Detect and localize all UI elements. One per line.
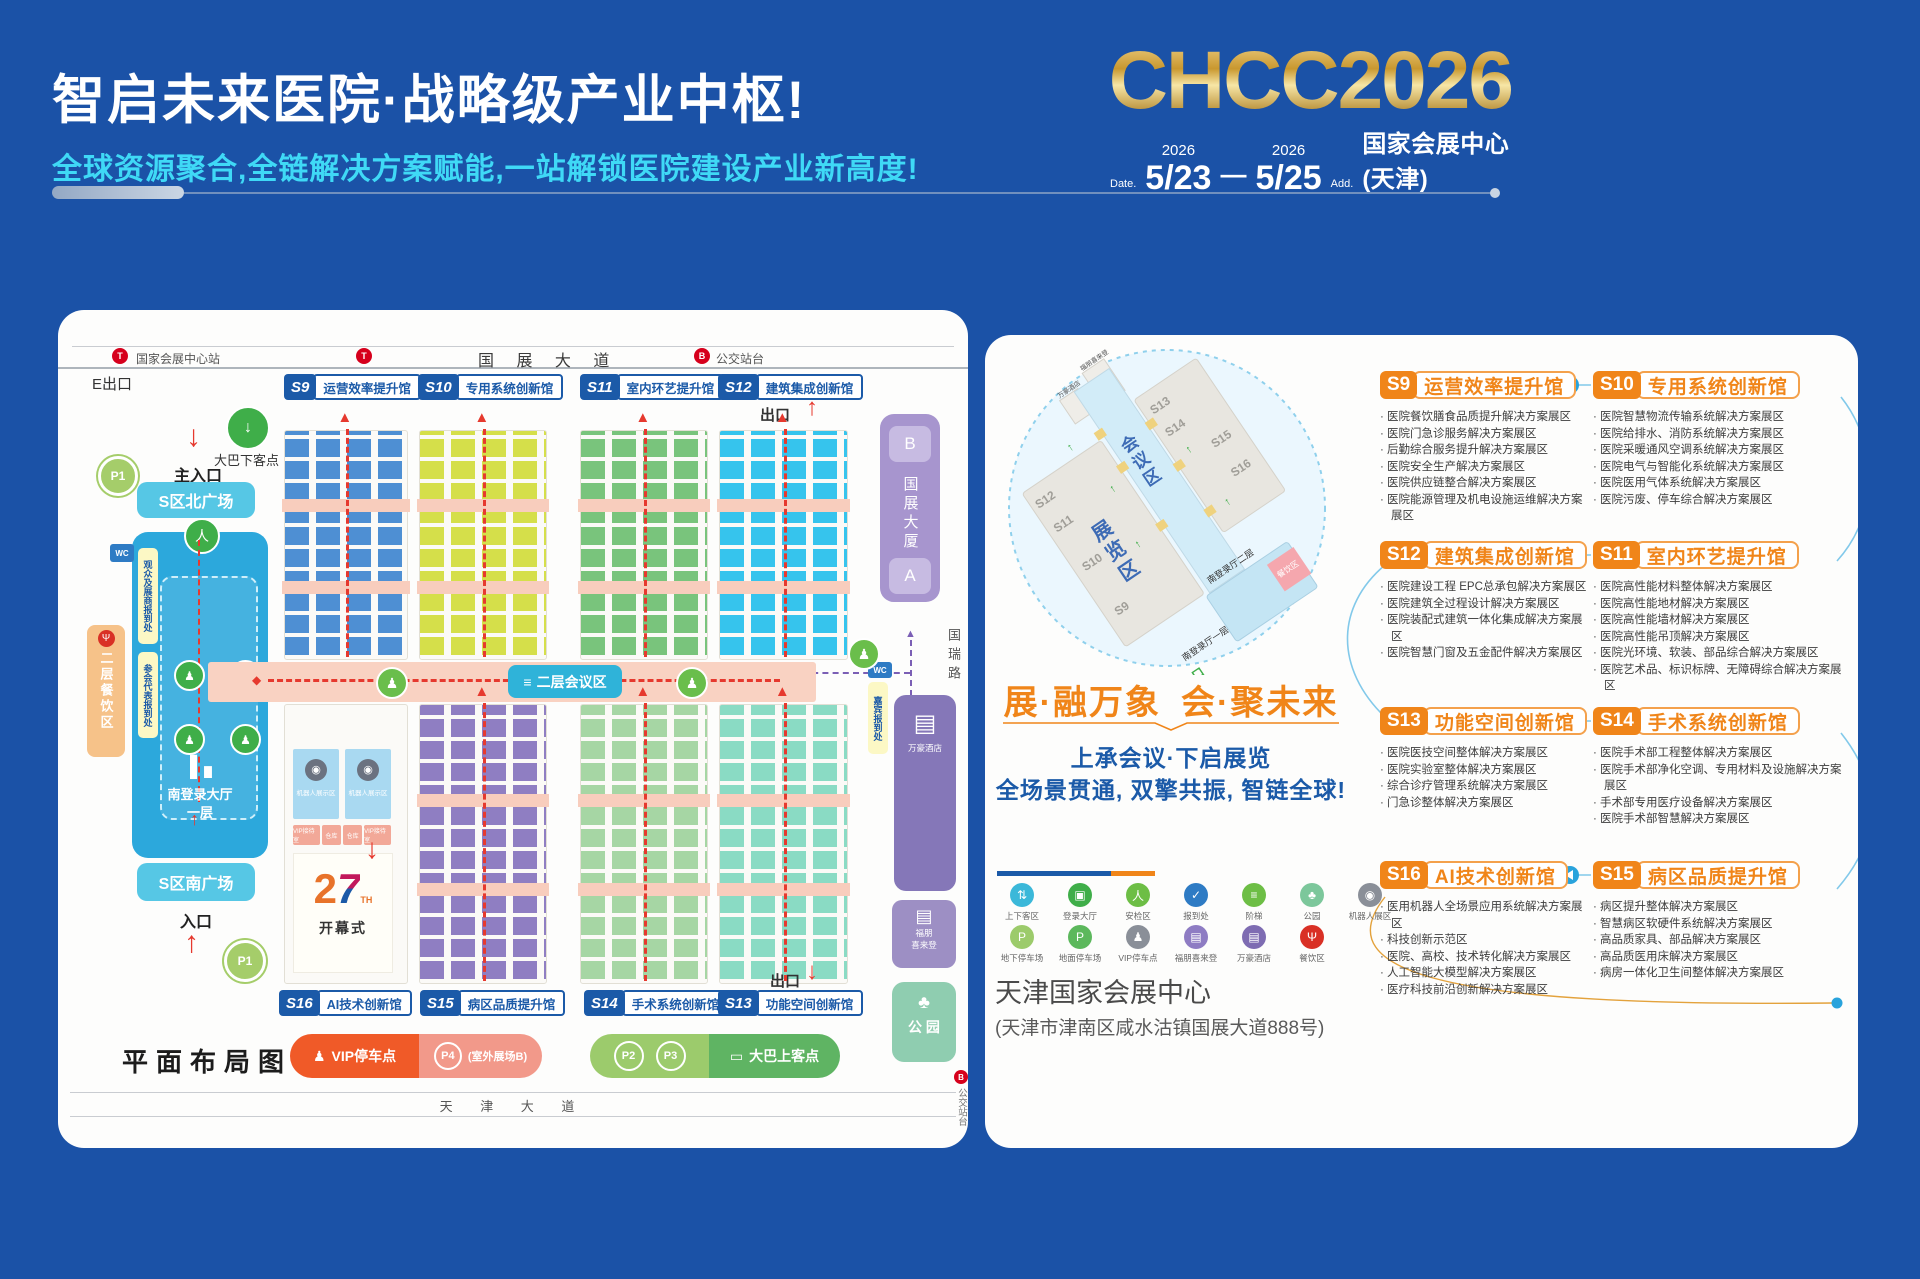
conference-zone-label: 二层会议区	[537, 672, 607, 692]
logo-th: TH	[360, 895, 372, 905]
hall-code: S15	[420, 990, 461, 1016]
section-items: 医院医技空间整体解决方案展区医院实验室整体解决方案展区综合诊疗管理系统解决方案展…	[1380, 745, 1592, 811]
legend-label: 地下停车场	[993, 952, 1051, 964]
section-item: 医院能源管理及机电设施运维解决方案展区	[1380, 492, 1592, 525]
park-block: ♣ 公 园	[892, 982, 956, 1062]
section-name: 功能空间创新馆	[1423, 707, 1587, 735]
legend-label: 登录大厅	[1051, 910, 1109, 922]
section-item: 医院医技空间整体解决方案展区	[1380, 745, 1592, 762]
section-item: 医院手术部净化空调、专用材料及设施解决方案展区	[1593, 762, 1848, 795]
section-header: S14 手术系统创新馆	[1593, 707, 1800, 735]
slogan-left: 展·融万象	[1004, 675, 1161, 724]
route-arrow-icon: ▲	[635, 683, 650, 700]
section-item: 医院高性能吊顶解决方案展区	[1593, 629, 1848, 646]
hall-s15-area: ▲	[419, 704, 547, 984]
section-s10: S10 专用系统创新馆 医院智慧物流传输系统解决方案展区医院给排水、消防系统解决…	[1593, 371, 1848, 508]
section-name: 建筑集成创新馆	[1423, 541, 1587, 569]
hotel-icon: ▤	[892, 906, 956, 927]
robot-icon: ◉	[305, 759, 327, 781]
route-arrow-icon: ▲	[775, 409, 790, 426]
hall-badge-s13: S13 功能空间创新馆	[718, 990, 863, 1016]
logo-7: 7	[337, 865, 360, 912]
date-label: Date.	[1110, 178, 1136, 190]
hall-s13-area: ▲	[719, 704, 848, 984]
fourpoints-label-1: 福朋	[892, 927, 956, 939]
section-item: 医院手术部智慧解决方案展区	[1593, 811, 1848, 828]
section-header: S9 运营效率提升馆	[1380, 371, 1576, 399]
hall-s9-area: ▲	[284, 430, 408, 660]
hall-s14-area: ▲	[580, 704, 708, 984]
legend-item: ♣ 公园	[1283, 883, 1341, 922]
section-s13: S13 功能空间创新馆 医院医技空间整体解决方案展区医院实验室整体解决方案展区综…	[1380, 707, 1592, 811]
marriott-hotel-label: 万豪酒店	[894, 742, 956, 754]
section-items: 医院餐饮膳食品质提升解决方案展区医院门急诊服务解决方案展区后勤综合服务提升解决方…	[1380, 409, 1592, 525]
robot-icon: ◉	[357, 759, 379, 781]
info-card: 万豪酒店 福朋喜来登 展览区 会议区 S12 S11 S10 S9 S13 S1…	[985, 335, 1858, 1148]
opening-ceremony-block: 27TH 开幕式	[293, 853, 393, 973]
legend-icon: ⇅	[1010, 883, 1034, 907]
exit-top-arrow-icon: ↑	[806, 394, 818, 422]
section-item: 高品质医用床解决方案展区	[1593, 949, 1848, 966]
legend-item: ▣ 登录大厅	[1051, 883, 1109, 922]
section-s9: S9 运营效率提升馆 医院餐饮膳食品质提升解决方案展区医院门急诊服务解决方案展区…	[1380, 371, 1592, 525]
robot-zone-label: 机器人展示区	[293, 787, 339, 797]
legend-label: 安检区	[1109, 910, 1167, 922]
road-name-south: 天 津 大 道	[58, 1096, 968, 1115]
legend-item: ⇅ 上下客区	[993, 883, 1051, 922]
hall-s16-area: ◉ 机器人展示区 ◉ 机器人展示区 VIP接待室 仓库 仓库 VIP接待室 ↓ …	[284, 704, 408, 984]
road-line	[70, 1092, 956, 1093]
route-arrow-icon: ▲	[474, 409, 489, 426]
logo-2: 2	[314, 865, 337, 912]
section-item: 医疗科技前沿创新解决方案展区	[1380, 982, 1592, 999]
section-item: 医院光环境、软装、部品综合解决方案展区	[1593, 645, 1848, 662]
south-login-hall-label: 南登录大厅	[132, 784, 268, 803]
section-item: 综合诊疗管理系统解决方案展区	[1380, 778, 1592, 795]
section-item: 医院采暖通风空调系统解决方案展区	[1593, 442, 1848, 459]
section-code: S12	[1380, 541, 1428, 569]
hall-code: S12	[718, 374, 759, 400]
p2-icon: P2	[614, 1041, 644, 1071]
exit-bottom-arrow-icon: ↓	[806, 958, 818, 986]
road-name-north: 国 展 大 道	[478, 347, 618, 371]
section-item: 医院建设工程 EPC总承包解决方案展区	[1380, 579, 1592, 596]
legend-bar	[997, 871, 1155, 876]
route-arrow-icon: ▲	[474, 683, 489, 700]
section-items: 医用机器人全场景应用系统解决方案展区科技创新示范区医院、高校、技术转化解决方案展…	[1380, 899, 1592, 998]
hall-badge-s11: S11 室内环艺提升馆	[580, 374, 724, 400]
section-items: 医院建设工程 EPC总承包解决方案展区医院建筑全过程设计解决方案展区医院装配式建…	[1380, 579, 1592, 662]
conference-zone-badge: ≡二层会议区	[508, 665, 622, 698]
walker-icon: ♟	[174, 724, 205, 755]
route-up-arrow-icon: ↑	[190, 809, 199, 830]
legend-icon: P	[1010, 925, 1034, 949]
bus-stop-icon: B	[694, 348, 710, 364]
central-corridor: ◆ ♟ ♟ ≡二层会议区	[208, 662, 816, 702]
robot-zone-block: ◉ 机器人展示区	[345, 749, 391, 819]
section-item: 医院供应链整合解决方案展区	[1380, 475, 1592, 492]
section-header: S16 AI技术创新馆	[1380, 861, 1568, 889]
exit-e-label: E出口	[92, 373, 132, 394]
vip-parking-pill: ♟ VIP停车点 P4 (室外展场B)	[290, 1034, 542, 1078]
guorui-road-label: 国瑞路	[944, 628, 963, 685]
guest-registration-label: 嘉宾报到处	[868, 682, 888, 754]
section-item: 医院高性能材料整体解决方案展区	[1593, 579, 1848, 596]
corridor-route-diamond-icon: ◆	[252, 673, 261, 687]
section-item: 医院安全生产解决方案展区	[1380, 459, 1592, 476]
legend-label: 上下客区	[993, 910, 1051, 922]
section-item: 病区提升整体解决方案展区	[1593, 899, 1848, 916]
section-name: 室内环艺提升馆	[1635, 541, 1799, 569]
floorplan-card: T 国家会展中心站 T B 公交站台 国 展 大 道 E出口 F出口 S9 运营…	[58, 310, 968, 1148]
p4-note: (室外展场B)	[468, 1048, 527, 1064]
bus-stop-icon: B	[954, 1070, 968, 1084]
hall-name: AI技术创新馆	[317, 990, 412, 1016]
legend-item: P 地面停车场	[1051, 925, 1109, 964]
sub-slogan-1: 上承会议·下启展览	[985, 739, 1357, 773]
section-name: 运营效率提升馆	[1412, 371, 1576, 399]
legend-label: 福朋喜来登	[1167, 952, 1225, 964]
guest-route-line	[802, 672, 910, 674]
venue-name: 天津国家会展中心	[995, 971, 1211, 1010]
section-item: 人工智能大模型解决方案展区	[1380, 965, 1592, 982]
dining-icon: Ψ	[98, 630, 115, 647]
legend-item: ≡ 阶梯	[1225, 883, 1283, 922]
section-item: 医院装配式建筑一体化集成解决方案展区	[1380, 612, 1592, 645]
legend-bar-orange	[1111, 871, 1155, 876]
section-item: 医院智慧门窗及五金配件解决方案展区	[1380, 645, 1592, 662]
section-item: 后勤综合服务提升解决方案展区	[1380, 442, 1592, 459]
wc-icon: WC	[110, 544, 134, 562]
legend-item: ♟ VIP停车点	[1109, 925, 1167, 964]
section-item: 病房一体化卫生间整体解决方案展区	[1593, 965, 1848, 982]
section-item: 医院高性能地材解决方案展区	[1593, 596, 1848, 613]
p3-icon: P3	[656, 1041, 686, 1071]
hall-code: S14	[584, 990, 625, 1016]
hall-name: 病区品质提升馆	[458, 990, 566, 1016]
page-subtitle: 全球资源聚合,全链解决方案赋能,一站解锁医院建设产业新高度!	[52, 144, 919, 188]
delegate-registration-label: 参会代表报到处	[138, 652, 158, 738]
route-dashed-line	[644, 703, 647, 981]
section-items: 医院高性能材料整体解决方案展区医院高性能地材解决方案展区医院高性能墙材解决方案展…	[1593, 579, 1848, 695]
route-down-arrow-icon: ↓	[365, 833, 379, 865]
entrance-arrow-icon: ↑	[184, 926, 199, 960]
walker-icon: ♟	[376, 667, 408, 699]
opening-ceremony-label: 开幕式	[294, 918, 392, 938]
robot-zone-label: 机器人展示区	[345, 787, 391, 797]
venue-overview-map: 万豪酒店 福朋喜来登 展览区 会议区 S12 S11 S10 S9 S13 S1…	[1000, 345, 1335, 675]
visitor-registration-label: 观众及展商报到处	[138, 548, 158, 644]
section-name: AI技术创新馆	[1423, 861, 1568, 889]
guest-route-arrow-icon: ▲	[905, 628, 916, 640]
hall-name: 室内环艺提升馆	[617, 374, 725, 400]
road-line	[70, 1116, 956, 1117]
metro-station-label: 国家会展中心站	[136, 350, 220, 367]
sub-slogan-2: 全场景贯通, 双擎共振, 智链全球!	[985, 771, 1357, 805]
legend-item: ▤ 万豪酒店	[1225, 925, 1283, 964]
hall-s12-area: ▲	[719, 430, 848, 660]
section-header: S12 建筑集成创新馆	[1380, 541, 1587, 569]
p4-icon: P4	[434, 1042, 462, 1070]
section-item: 智慧病区软硬件系统解决方案展区	[1593, 916, 1848, 933]
slogan-row: 展·融万象 会·聚未来	[985, 675, 1357, 724]
legend-icon: ▤	[1242, 925, 1266, 949]
main-entrance-arrow-icon: ↓	[186, 420, 201, 454]
legend-icon: ◉	[1358, 883, 1382, 907]
section-item: 医院高性能墙材解决方案展区	[1593, 612, 1848, 629]
event-dates: Date. 20265/23 — 20265/25 Add. 国家会展中心(天津…	[1110, 124, 1515, 195]
legend-item: Ψ 餐饮区	[1283, 925, 1341, 964]
bus-icon: ▭	[730, 1048, 743, 1065]
legend-icon: P	[1068, 925, 1092, 949]
tree-icon: ♣	[892, 992, 956, 1013]
route-arrow-icon: ▲	[775, 683, 790, 700]
walker-icon: ♟	[848, 638, 880, 670]
legend-row-1: ⇅ 上下客区 ▣ 登录大厅 人 安检区 ✓ 报到处 ≡ 阶梯 ♣ 公园 ◉ 机器…	[993, 883, 1399, 922]
hall-badge-s10: S10 专用系统创新馆	[418, 374, 563, 400]
legend-icon: ♣	[1300, 883, 1324, 907]
hall-s11-area: ▲	[580, 430, 708, 660]
poster-page: 智启未来医院·战略级产业中枢! 全球资源聚合,全链解决方案赋能,一站解锁医院建设…	[0, 0, 1920, 1279]
legend-icon: 人	[1126, 883, 1150, 907]
hall-badge-s15: S15 病区品质提升馆	[420, 990, 565, 1016]
section-s15: S15 病区品质提升馆 病区提升整体解决方案展区智慧病区软硬件系统解决方案展区高…	[1593, 861, 1848, 982]
section-item: 医用机器人全场景应用系统解决方案展区	[1380, 899, 1592, 932]
legend-item: P 地下停车场	[993, 925, 1051, 964]
legend-label: 公园	[1283, 910, 1341, 922]
legend-icon: ♟	[1126, 925, 1150, 949]
section-code: S13	[1380, 707, 1428, 735]
plan-title: 平面布局图	[122, 1042, 292, 1079]
metro-icon: T	[356, 348, 372, 364]
section-item: 医院智慧物流传输系统解决方案展区	[1593, 409, 1848, 426]
tower-a-label: A	[889, 558, 931, 594]
hall-name: 专用系统创新馆	[456, 374, 564, 400]
27th-logo: 27TH	[294, 868, 392, 910]
walker-icon: ♟	[230, 724, 261, 755]
hall-name: 运营效率提升馆	[313, 374, 421, 400]
hall-code: S9	[284, 374, 316, 400]
section-items: 医院手术部工程整体解决方案展区医院手术部净化空调、专用材料及设施解决方案展区手术…	[1593, 745, 1848, 828]
vip-room-label: VIP接待室	[293, 825, 320, 845]
section-item: 医院污废、停车综合解决方案展区	[1593, 492, 1848, 509]
section-s12: S12 建筑集成创新馆 医院建设工程 EPC总承包解决方案展区医院建筑全过程设计…	[1380, 541, 1592, 662]
south-login-hall-floor: 一层	[132, 802, 268, 821]
page-title: 智启未来医院·战略级产业中枢!	[52, 58, 806, 134]
bus-pickup-pill: P2 P3 ▭ 大巴上客点	[590, 1034, 840, 1078]
section-item: 医院建筑全过程设计解决方案展区	[1380, 596, 1592, 613]
legend-icon: ▤	[1184, 925, 1208, 949]
venue-name-header: 国家会展中心(天津)	[1362, 124, 1515, 194]
divider-line	[184, 192, 1492, 194]
legend-label: 餐饮区	[1283, 952, 1341, 964]
section-header: S10 专用系统创新馆	[1593, 371, 1800, 399]
p1-parking-icon: P1	[98, 456, 138, 496]
bus-dropoff-icon: ↓	[226, 406, 270, 450]
slogan-right: 会·聚未来	[1181, 675, 1338, 724]
section-item: 医院给排水、消防系统解决方案展区	[1593, 426, 1848, 443]
legend-icon: Ψ	[1300, 925, 1324, 949]
storage-label: 仓库	[343, 825, 362, 845]
building-icon: ▌▖	[190, 754, 220, 779]
legend-icon: ✓	[1184, 883, 1208, 907]
route-arrow-icon: ▲	[337, 409, 352, 426]
section-item: 科技创新示范区	[1380, 932, 1592, 949]
legend-item: 人 安检区	[1109, 883, 1167, 922]
metro-icon: T	[112, 348, 128, 364]
divider-bar	[52, 186, 184, 199]
fourpoints-label-2: 喜来登	[892, 939, 956, 951]
slogan-underline	[1003, 719, 1339, 731]
park-label: 公 园	[892, 1017, 956, 1037]
hall-badge-s14: S14 手术系统创新馆	[584, 990, 729, 1016]
section-item: 医院手术部工程整体解决方案展区	[1593, 745, 1848, 762]
expo-tower-label: 国展大厦	[880, 472, 940, 556]
south-plaza-label: S区南广场	[137, 863, 255, 901]
section-code: S9	[1380, 371, 1417, 399]
divider-dot	[1490, 188, 1500, 198]
marriott-hotel-block: ▤ 万豪酒店	[894, 695, 956, 891]
section-item: 高品质家具、部品解决方案展区	[1593, 932, 1848, 949]
section-s16: S16 AI技术创新馆 医用机器人全场景应用系统解决方案展区科技创新示范区医院、…	[1380, 861, 1592, 998]
route-dashed-line	[784, 703, 787, 981]
legend-label: 阶梯	[1225, 910, 1283, 922]
expo-tower-block: B 国展大厦 A	[880, 414, 940, 602]
bus-dropoff-label: 大巴下客点	[214, 450, 279, 469]
hall-s10-area: ▲	[419, 430, 547, 660]
hotel-icon: ▤	[894, 709, 956, 738]
legend-item: ✓ 报到处	[1167, 883, 1225, 922]
section-item: 医院医用气体系统解决方案展区	[1593, 475, 1848, 492]
section-item: 医院电气与智能化系统解决方案展区	[1593, 459, 1848, 476]
legend-label: 万豪酒店	[1225, 952, 1283, 964]
section-name: 手术系统创新馆	[1636, 707, 1800, 735]
hall-code: S11	[580, 374, 620, 400]
north-plaza-label: S区北广场	[137, 482, 255, 518]
section-s14: S14 手术系统创新馆 医院手术部工程整体解决方案展区医院手术部净化空调、专用材…	[1593, 707, 1848, 828]
section-item: 医院艺术品、标识标牌、无障碍综合解决方案展区	[1593, 662, 1848, 695]
section-item: 医院实验室整体解决方案展区	[1380, 762, 1592, 779]
hall-badge-s12: S12 建筑集成创新馆	[718, 374, 863, 400]
walker-icon: ♟	[676, 667, 708, 699]
section-name: 专用系统创新馆	[1636, 371, 1800, 399]
section-header: S13 功能空间创新馆	[1380, 707, 1587, 735]
section-header: S11 室内环艺提升馆	[1593, 541, 1799, 569]
section-item: 医院、高校、技术转化解决方案展区	[1380, 949, 1592, 966]
section-header: S15 病区品质提升馆	[1593, 861, 1800, 889]
section-item: 手术部专用医疗设备解决方案展区	[1593, 795, 1848, 812]
p1-parking-icon: P1	[224, 940, 266, 982]
hall-badge-s9: S9 运营效率提升馆	[284, 374, 421, 400]
section-code: S10	[1593, 371, 1641, 399]
venue-address: (天津市津南区咸水沽镇国展大道888号)	[995, 1013, 1324, 1040]
vip-parking-label: VIP停车点	[332, 1046, 397, 1066]
route-dashed-line	[644, 429, 647, 657]
hall-name: 手术系统创新馆	[622, 990, 730, 1016]
date-end: 20265/25	[1255, 143, 1321, 195]
section-items: 医院智慧物流传输系统解决方案展区医院给排水、消防系统解决方案展区医院采暖通风空调…	[1593, 409, 1848, 508]
vip-person-icon: ♟	[313, 1048, 326, 1065]
hall-code: S10	[418, 374, 459, 400]
section-name: 病区品质提升馆	[1636, 861, 1800, 889]
chcc-logo: CHCC2026	[1100, 40, 1512, 122]
route-dashed-line	[346, 429, 349, 657]
fourpoints-hotel-block: ▤ 福朋 喜来登	[892, 900, 956, 968]
section-item: 门急诊整体解决方案展区	[1380, 795, 1592, 812]
section-code: S14	[1593, 707, 1641, 735]
people-icon: ≡	[523, 674, 531, 690]
route-arrow-icon: ▲	[635, 409, 650, 426]
date-start: 20265/23	[1145, 143, 1211, 195]
section-code: S16	[1380, 861, 1428, 889]
section-item: 医院门急诊服务解决方案展区	[1380, 426, 1592, 443]
section-s11: S11 室内环艺提升馆 医院高性能材料整体解决方案展区医院高性能地材解决方案展区…	[1593, 541, 1848, 695]
dining-area-block: Ψ 二层餐饮区	[87, 625, 125, 757]
storage-label: 仓库	[322, 825, 341, 845]
walker-icon: ♟	[174, 660, 205, 691]
robot-zone-block: ◉ 机器人展示区	[293, 749, 339, 819]
date-dash: —	[1220, 159, 1246, 190]
tower-b-label: B	[889, 426, 931, 462]
section-code: S11	[1593, 541, 1640, 569]
section-items: 病区提升整体解决方案展区智慧病区软硬件系统解决方案展区高品质家具、部品解决方案展…	[1593, 899, 1848, 982]
legend-row-2: P 地下停车场 P 地面停车场 ♟ VIP停车点 ▤ 福朋喜来登 ▤ 万豪酒店 …	[993, 925, 1341, 964]
hall-code: S13	[718, 990, 759, 1016]
legend-item: ▤ 福朋喜来登	[1167, 925, 1225, 964]
hall-name: 功能空间创新馆	[756, 990, 864, 1016]
legend-label: 地面停车场	[1051, 952, 1109, 964]
section-item: 医院餐饮膳食品质提升解决方案展区	[1380, 409, 1592, 426]
legend-icon: ≡	[1242, 883, 1266, 907]
route-dashed-line	[784, 429, 787, 657]
addr-label: Add.	[1331, 178, 1354, 190]
hall-code: S16	[279, 990, 320, 1016]
bus-stop-label: 公交站台	[716, 350, 764, 367]
legend-label: VIP停车点	[1109, 952, 1167, 964]
hall-badge-s16: S16 AI技术创新馆	[279, 990, 412, 1016]
bus-pickup-label: 大巴上客点	[749, 1046, 819, 1066]
legend-bar-blue	[997, 871, 1111, 876]
dining-area-label: 二层餐饮区	[97, 651, 116, 731]
route-dashed-line	[483, 429, 486, 657]
entry-gate-icon: 人	[184, 518, 220, 554]
legend-icon: ▣	[1068, 883, 1092, 907]
section-code: S15	[1593, 861, 1641, 889]
legend-label: 报到处	[1167, 910, 1225, 922]
route-dashed-line	[483, 703, 486, 981]
